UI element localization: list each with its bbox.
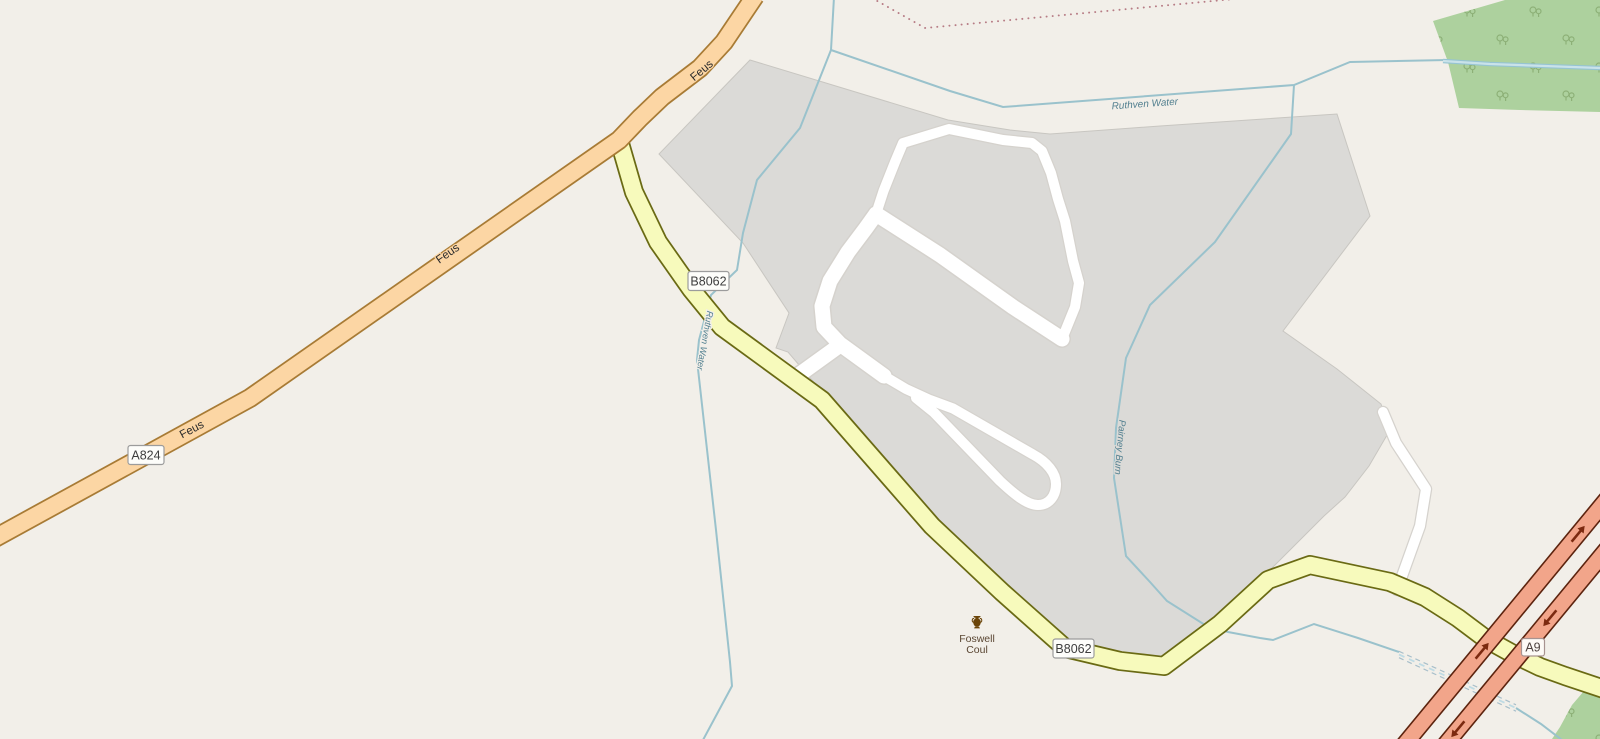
svg-text:B8062: B8062: [1055, 642, 1091, 656]
svg-text:B8062: B8062: [690, 275, 726, 289]
svg-text:A824: A824: [131, 449, 160, 463]
svg-text:Coul: Coul: [966, 644, 988, 656]
svg-text:A9: A9: [1525, 641, 1540, 655]
